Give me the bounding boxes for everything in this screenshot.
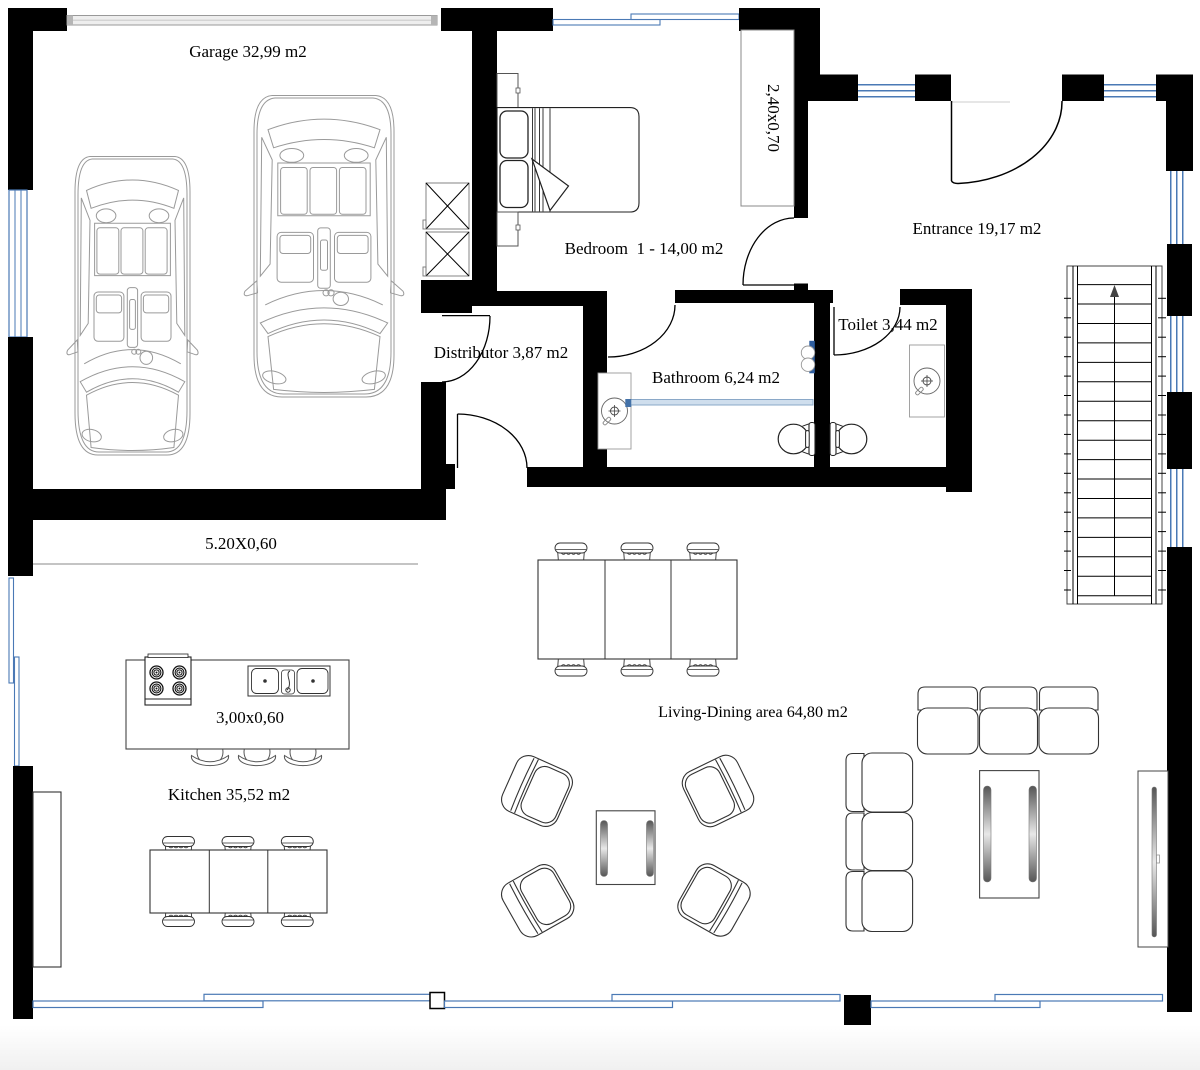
svg-text:Entrance 19,17 m2: Entrance 19,17 m2 bbox=[913, 219, 1042, 238]
svg-text:Garage 32,99 m2: Garage 32,99 m2 bbox=[189, 42, 307, 61]
svg-text:Kitchen 35,52 m2: Kitchen 35,52 m2 bbox=[168, 785, 290, 804]
svg-text:Toilet 3,44 m2: Toilet 3,44 m2 bbox=[838, 315, 937, 334]
svg-text:2,40x0,70: 2,40x0,70 bbox=[764, 84, 783, 152]
svg-text:Distributor 3,87 m2: Distributor 3,87 m2 bbox=[434, 343, 569, 362]
svg-text:Bathroom 6,24 m2: Bathroom 6,24 m2 bbox=[652, 368, 780, 387]
svg-text:3,00x0,60: 3,00x0,60 bbox=[216, 708, 284, 727]
svg-text:5.20X0,60: 5.20X0,60 bbox=[205, 534, 277, 553]
svg-text:Living-Dining area 64,80 m2: Living-Dining area 64,80 m2 bbox=[658, 703, 848, 721]
svg-text:Bedroom 1 - 14,00 m2: Bedroom 1 - 14,00 m2 bbox=[565, 239, 724, 258]
